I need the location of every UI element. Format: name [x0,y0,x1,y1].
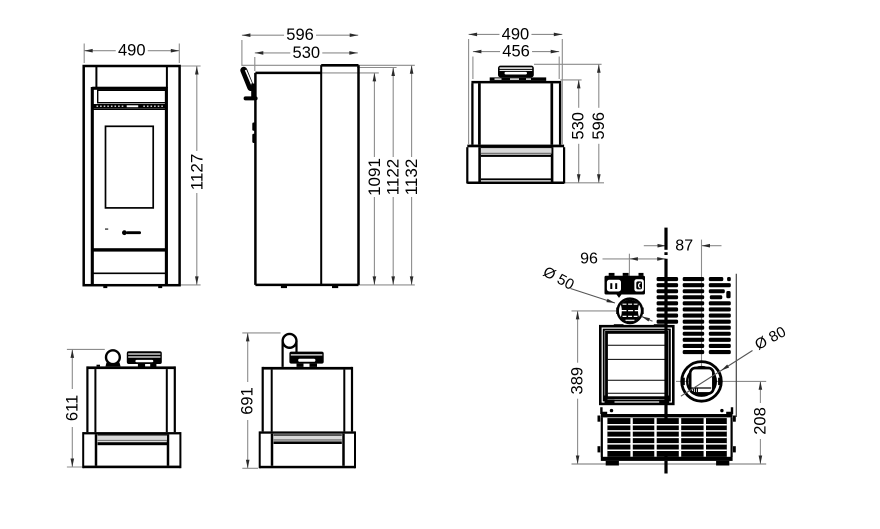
svg-text:596: 596 [590,112,608,140]
svg-text:691: 691 [239,387,257,415]
svg-text:456: 456 [502,43,530,61]
svg-text:208: 208 [751,407,769,435]
svg-text:1127: 1127 [187,154,206,191]
svg-text:1091: 1091 [365,158,384,196]
svg-text:87: 87 [675,238,693,255]
svg-text:530: 530 [570,112,588,140]
svg-text:611: 611 [63,395,81,421]
svg-text:490: 490 [118,42,146,60]
svg-text:389: 389 [569,367,587,395]
svg-text:596: 596 [286,26,314,44]
svg-text:530: 530 [293,44,321,62]
svg-text:1122: 1122 [384,159,403,196]
svg-text:1132: 1132 [402,159,421,196]
svg-text:96: 96 [580,251,598,268]
svg-text:490: 490 [502,25,530,43]
